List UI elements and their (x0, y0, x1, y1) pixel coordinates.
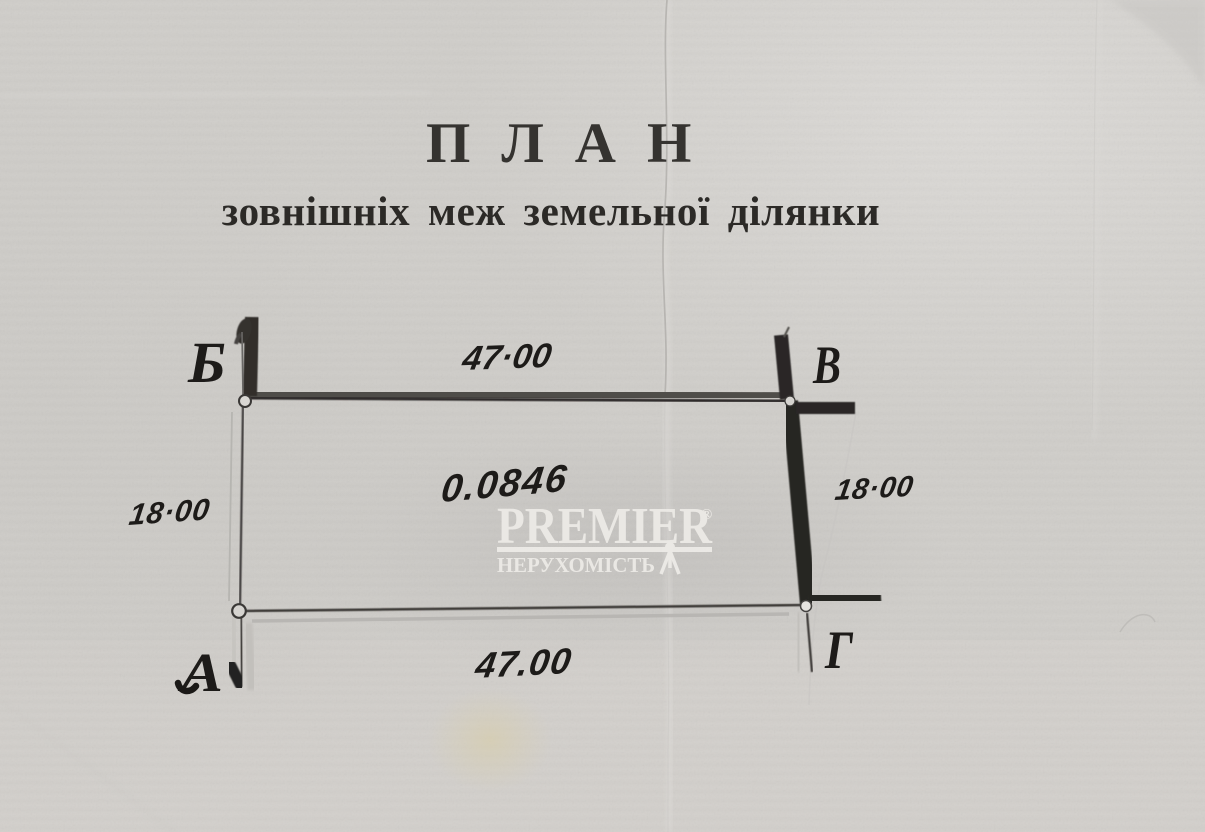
svg-text:18·00: 18·00 (127, 493, 212, 532)
svg-text:В: В (812, 335, 841, 395)
svg-text:зовнішніх меж земельної ділянк: зовнішніх меж земельної ділянки (222, 188, 880, 234)
svg-text:Б: Б (187, 330, 226, 395)
svg-text:Г: Г (824, 620, 853, 680)
svg-text:47.00: 47.00 (472, 640, 575, 686)
svg-text:НЕРУХОМІСТЬ: НЕРУХОМІСТЬ (497, 553, 655, 577)
svg-text:PREMIER: PREMIER (497, 498, 713, 555)
svg-text:ПЛАН: ПЛАН (426, 112, 722, 175)
svg-text:®: ® (701, 507, 712, 523)
svg-text:18·00: 18·00 (833, 470, 916, 507)
svg-text:47·00: 47·00 (459, 337, 555, 378)
